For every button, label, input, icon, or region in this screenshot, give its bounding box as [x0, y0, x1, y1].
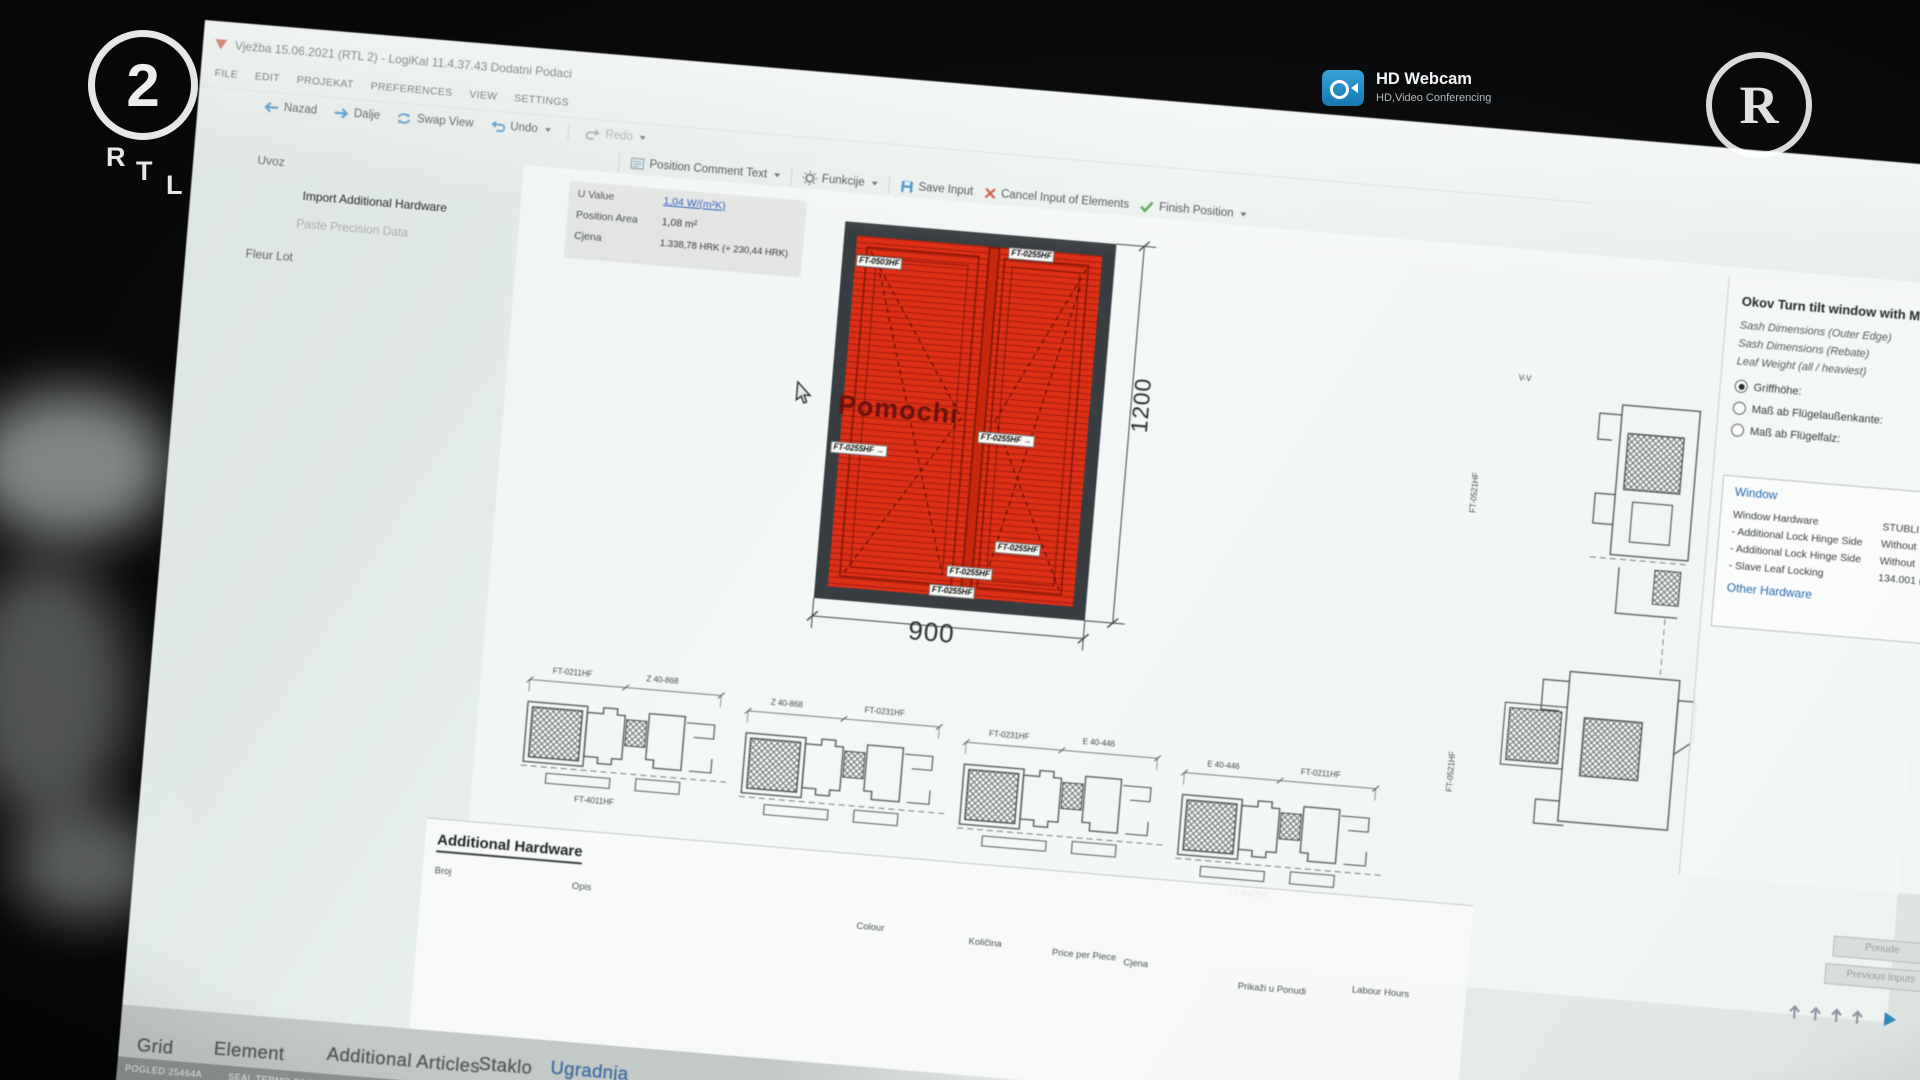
column-opis: Opis [571, 881, 591, 894]
radio-fluegelfalz-label: Maß ab Flügelfalz: [1750, 425, 1841, 445]
window-group-header[interactable]: Window [1734, 485, 1778, 503]
save-input-button[interactable]: Save Input [900, 179, 974, 198]
window-hardware-label: Window Hardware [1732, 509, 1818, 528]
leaf-weight-label: Leaf Weight (all / heaviest) [1736, 355, 1867, 378]
back-button[interactable]: Nazad [263, 100, 317, 116]
dimension-height-label: 1200 [1126, 377, 1158, 434]
channel-number: 2 [126, 51, 159, 120]
column-broj: Broj [434, 865, 452, 877]
radio-icon[interactable] [1731, 423, 1745, 437]
radio-aussenkante-label: Maß ab Flügelaußenkante: [1751, 403, 1883, 426]
undo-label: Undo [510, 121, 538, 135]
cross-section-drawing: Z 40-868 FT-0231HF [732, 693, 960, 870]
menu-file[interactable]: FILE [214, 67, 238, 81]
section-dim-label: Z 40-868 [646, 674, 679, 686]
dimension-width-label: 900 [907, 615, 956, 650]
additional-hardware-header: Additional Hardware [436, 831, 583, 864]
rtl-letter: L [166, 170, 183, 201]
sidebar-item-uvoz[interactable]: Uvoz [257, 153, 285, 169]
column-prikazi-u-ponudi: Prikaži u Ponudi [1237, 981, 1306, 998]
undo-button[interactable]: Undo [490, 119, 551, 136]
cross-section-drawing: FT-0211HF Z 40-868 FT-4011HF [514, 661, 742, 838]
redo-label: Redo [605, 129, 633, 143]
sidebar-item-paste-precision-data[interactable]: Paste Precision Data [296, 216, 409, 239]
section-dim-label: E 40-446 [1207, 759, 1241, 771]
logikal-app-icon [215, 39, 228, 50]
redo-icon [585, 128, 601, 140]
next-button[interactable]: Dalje [333, 106, 380, 122]
menu-preferences[interactable]: PREFERENCES [370, 80, 453, 99]
rtl-letter: T [136, 156, 153, 187]
position-comment-caret-icon[interactable] [774, 173, 780, 177]
webcam-overlay: HD Webcam HD,Video Conferencing [1322, 70, 1491, 106]
tab-staklo[interactable]: Staklo [478, 1053, 533, 1079]
menu-view[interactable]: VIEW [469, 88, 498, 102]
comment-text-icon [630, 157, 645, 170]
area-value: 1,08 m² [661, 216, 697, 231]
finish-check-icon [1140, 200, 1155, 213]
finish-position-caret-icon[interactable] [1240, 212, 1246, 216]
column-cjena: Cjena [1123, 957, 1149, 970]
webcam-subtitle: HD,Video Conferencing [1376, 92, 1491, 104]
rtl-letter: R [106, 142, 126, 173]
funkcije-button[interactable]: Funkcije [802, 171, 878, 191]
section-dim-label: FT-0521HF [1468, 472, 1480, 513]
section-dim-label: FT-0231HF [864, 706, 905, 718]
gear-icon [802, 171, 817, 186]
radio-griffhoehe-label: Griffhöhe: [1753, 381, 1802, 397]
background-blur-blob [0, 390, 170, 540]
next-label: Dalje [353, 108, 380, 122]
dimension-lines-graphic [793, 203, 1211, 703]
swap-view-button[interactable]: Swap View [396, 111, 474, 130]
section-dim-label: FT-0211HF [552, 666, 593, 678]
rtl2-channel-logo: 2 [88, 30, 198, 140]
uvalue-label: U Value [577, 188, 664, 207]
additional-lock-value[interactable]: Without [1879, 555, 1915, 570]
background-blur-blob [10, 810, 160, 920]
slave-leaf-locking-value[interactable]: 134.001 ( [1878, 572, 1920, 588]
window-hardware-value[interactable]: STUBLI [1882, 521, 1920, 536]
tab-grid[interactable]: Grid [136, 1034, 174, 1059]
back-label: Nazad [283, 102, 317, 117]
toolbar-navigation: Nazad Dalje Swap View Undo Redo [263, 97, 646, 147]
save-input-label: Save Input [918, 181, 974, 198]
background-blur-blob [0, 560, 130, 820]
up-arrow-icon[interactable] [1829, 1006, 1844, 1024]
section-dim-label: FT-0521HF [1445, 751, 1457, 792]
section-dim-label: FT-0231HF [989, 729, 1030, 741]
up-arrow-icon[interactable] [1787, 1002, 1802, 1020]
section-dim-label: FT-0211HF [1301, 767, 1342, 779]
sidebar-item-fleur-lot[interactable]: Fleur Lot [245, 246, 293, 264]
redo-dropdown-caret-icon[interactable] [640, 136, 646, 140]
radio-icon[interactable] [1732, 401, 1746, 415]
radio-mass-fluegelfalz[interactable]: Maß ab Flügelfalz: [1731, 423, 1841, 445]
undo-dropdown-caret-icon[interactable] [544, 128, 550, 132]
undo-icon [490, 120, 506, 132]
panel-header: Okov Turn tilt window with MS [1741, 294, 1920, 325]
section-dim-label: E 40-446 [1082, 737, 1116, 749]
radio-mass-aussenkante[interactable]: Maß ab Flügelaußenkante: [1732, 401, 1883, 427]
column-price-per-piece: Price per Piece [1051, 947, 1116, 963]
webcam-title: HD Webcam [1376, 70, 1491, 89]
radio-selected-icon[interactable] [1734, 379, 1748, 393]
slave-leaf-locking-label: - Slave Leaf Locking [1728, 559, 1824, 579]
menu-projekat[interactable]: PROJEKAT [296, 74, 354, 91]
save-disk-icon [900, 179, 914, 193]
rtl-letters-logo: R T L [106, 142, 226, 222]
column-labour-hours: Labour Hours [1351, 984, 1409, 1000]
toolbar-separator [888, 176, 891, 194]
swap-refresh-icon [396, 111, 412, 125]
funkcije-caret-icon[interactable] [871, 181, 877, 185]
up-arrow-icon[interactable] [1850, 1008, 1865, 1026]
play-next-icon[interactable] [1881, 1010, 1900, 1029]
webcam-icon [1322, 70, 1364, 106]
up-arrow-icon[interactable] [1808, 1004, 1823, 1022]
section-dim-label: FT-4011HF [574, 795, 615, 807]
section-dim-label: Z 40-868 [771, 698, 804, 710]
toolbar-separator [618, 153, 621, 171]
laptop-screen: Vježba 15.06.2021 (RTL 2) - LogiKal 11.4… [111, 20, 1920, 1080]
photo-stage: Vježba 15.06.2021 (RTL 2) - LogiKal 11.4… [0, 0, 1920, 1080]
mouse-cursor [793, 381, 815, 407]
arrow-left-icon [264, 101, 280, 113]
sidebar-item-import-additional-hardware[interactable]: Import Additional Hardware [302, 189, 447, 215]
column-colour: Colour [856, 921, 885, 934]
additional-lock-value[interactable]: Without [1881, 538, 1917, 553]
cancel-x-icon [984, 187, 997, 200]
finish-position-label: Finish Position [1159, 202, 1235, 220]
other-hardware-link[interactable]: Other Hardware [1726, 580, 1812, 601]
swap-view-label: Swap View [416, 113, 473, 130]
column-kolicina: Količina [968, 936, 1002, 950]
redo-button[interactable]: Redo [585, 127, 646, 144]
menu-edit[interactable]: EDIT [254, 70, 280, 84]
arrow-right-icon [334, 107, 350, 119]
registered-watermark-logo: R [1706, 52, 1812, 158]
radio-griffhoehe[interactable]: Griffhöhe: [1734, 379, 1802, 398]
webcam-text-block: HD Webcam HD,Video Conferencing [1376, 70, 1491, 104]
uvalue-link[interactable]: 1,04 W/(m²K) [663, 195, 726, 212]
watermark-letter: R [1740, 74, 1779, 136]
toolbar-separator [567, 123, 570, 141]
window-hardware-group: Window Window Hardware STUBLI - Addition… [1711, 475, 1920, 672]
menu-settings[interactable]: SETTINGS [514, 92, 570, 109]
section-marker-label: V-V [1518, 373, 1532, 383]
funkcije-label: Funkcije [821, 173, 865, 189]
toolbar-separator [790, 168, 793, 186]
